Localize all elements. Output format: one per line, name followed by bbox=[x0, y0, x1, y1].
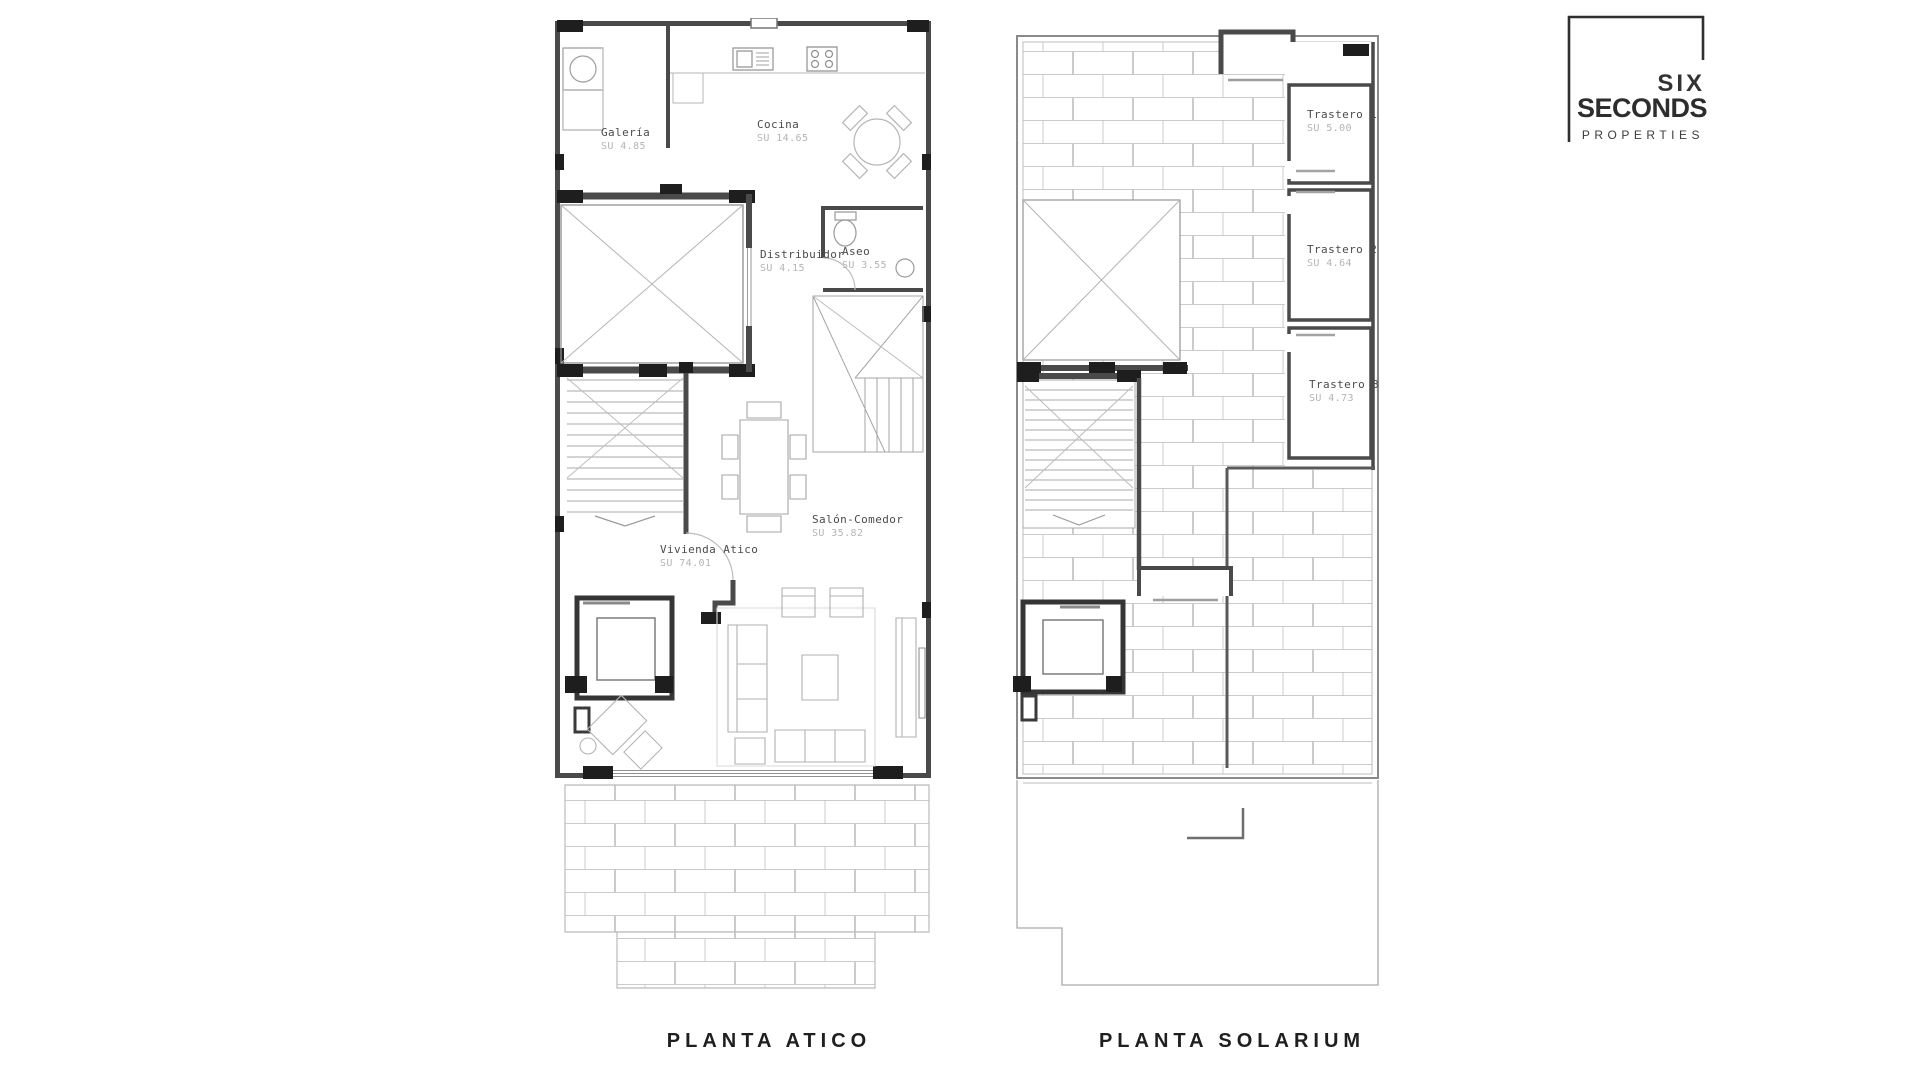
room-name: Distribuidor bbox=[760, 248, 844, 261]
atico-terrace-brick bbox=[565, 785, 929, 988]
room-label-trastero-1: Trastero 1 SU 5.00 bbox=[1307, 108, 1377, 135]
solarium-lower-terrace bbox=[1017, 780, 1378, 985]
stair-lobby bbox=[1139, 568, 1231, 600]
room-area: SU 4.64 bbox=[1307, 257, 1377, 270]
room-label-cocina: Cocina SU 14.65 bbox=[757, 118, 808, 145]
room-area: SU 14.65 bbox=[757, 132, 808, 145]
void-skylight bbox=[557, 184, 755, 377]
logo: SIX SECONDS PROPERTIES bbox=[1567, 14, 1717, 154]
solarium-floorplan-drawing bbox=[1013, 28, 1383, 993]
room-name: Aseo bbox=[842, 245, 887, 258]
room-label-trastero-2: Trastero 2 SU 4.64 bbox=[1307, 243, 1377, 270]
room-name: Vivienda Atico bbox=[660, 543, 758, 556]
room-label-distribuidor: Distribuidor SU 4.15 bbox=[760, 248, 844, 275]
room-name: Trastero 2 bbox=[1307, 243, 1377, 256]
room-name: Galería bbox=[601, 126, 650, 139]
dining-table bbox=[722, 402, 806, 532]
terrace-step-wall bbox=[1187, 808, 1243, 838]
armchair bbox=[580, 695, 662, 769]
void-skylight bbox=[1017, 200, 1188, 374]
kitchen-sink bbox=[733, 48, 773, 70]
plan-title-solarium: PLANTA SOLARIUM bbox=[1099, 1030, 1365, 1053]
stairs bbox=[567, 362, 693, 534]
room-area: SU 3.55 bbox=[842, 259, 887, 272]
sofa-set bbox=[717, 588, 925, 766]
galeria-washer bbox=[563, 48, 603, 130]
room-label-salon-comedor: Salón-Comedor SU 35.82 bbox=[812, 513, 903, 540]
room-name: Trastero 3 bbox=[1309, 378, 1379, 391]
room-area: SU 35.82 bbox=[812, 527, 903, 540]
logo-word-seconds: SECONDS bbox=[1577, 93, 1707, 124]
kitchen-table bbox=[843, 106, 912, 179]
elevator bbox=[565, 598, 673, 732]
kitchen-counter bbox=[670, 73, 925, 103]
plan-title-atico: PLANTA ATICO bbox=[667, 1030, 871, 1053]
room-area: SU 74.01 bbox=[660, 557, 758, 570]
room-name: Cocina bbox=[757, 118, 808, 131]
roof-access-bulkhead bbox=[1219, 30, 1295, 80]
stair-winder bbox=[813, 296, 923, 452]
room-area: SU 4.85 bbox=[601, 140, 650, 153]
room-area: SU 4.15 bbox=[760, 262, 844, 275]
room-label-trastero-3: Trastero 3 SU 4.73 bbox=[1309, 378, 1379, 405]
logo-word-properties: PROPERTIES bbox=[1582, 128, 1704, 142]
room-area: SU 5.00 bbox=[1307, 122, 1377, 135]
floorplan-sheet: Galería SU 4.85 Cocina SU 14.65 Distribu… bbox=[0, 0, 1920, 1080]
room-label-aseo: Aseo SU 3.55 bbox=[842, 245, 887, 272]
room-name: Salón-Comedor bbox=[812, 513, 903, 526]
room-label-vivienda-atico: Vivienda Atico SU 74.01 bbox=[660, 543, 758, 570]
room-name: Trastero 1 bbox=[1307, 108, 1377, 121]
atico-floorplan-drawing bbox=[555, 18, 935, 993]
kitchen-stove bbox=[807, 47, 837, 71]
room-label-galeria: Galería SU 4.85 bbox=[601, 126, 650, 153]
room-area: SU 4.73 bbox=[1309, 392, 1379, 405]
